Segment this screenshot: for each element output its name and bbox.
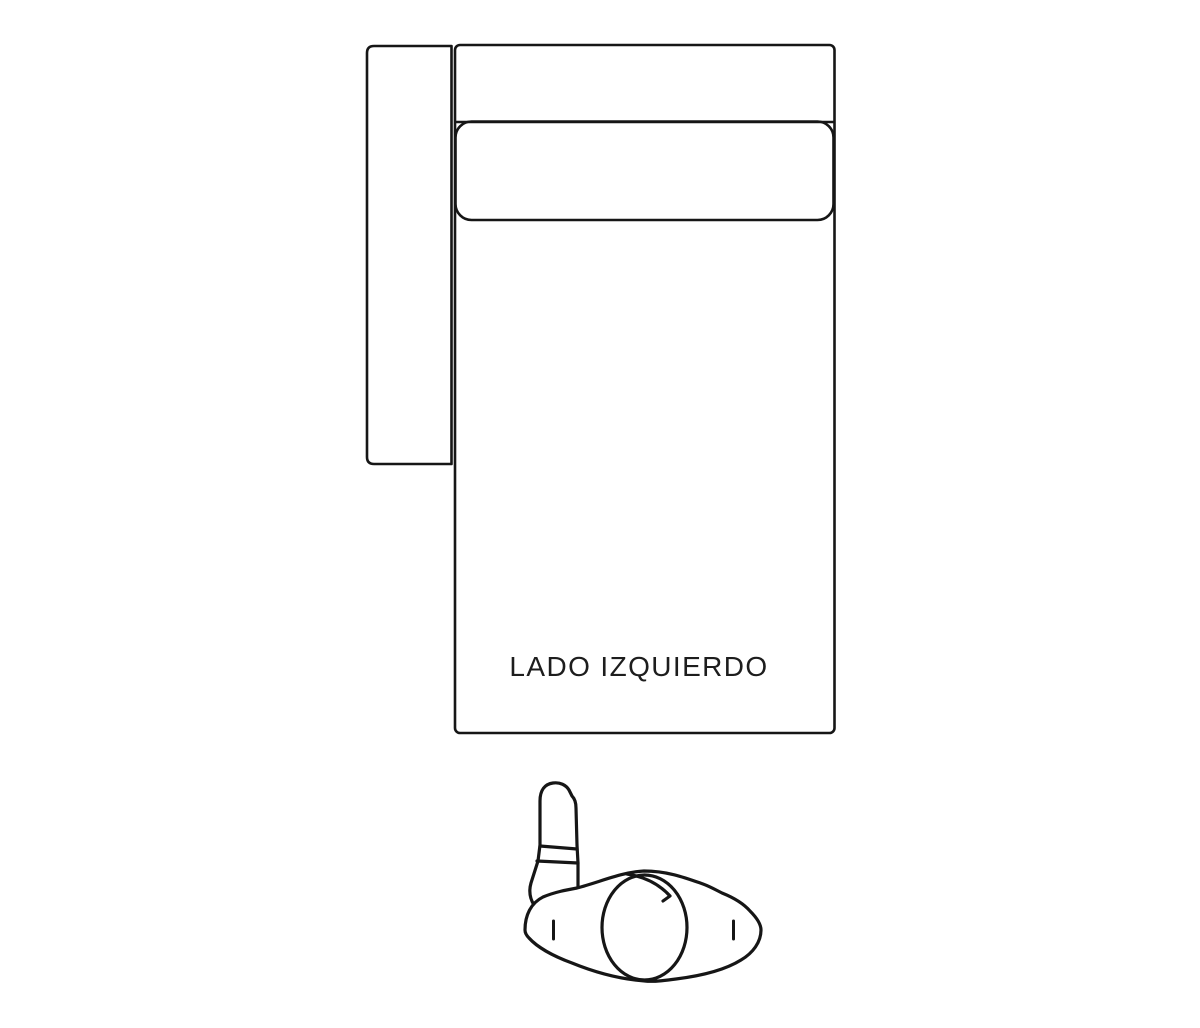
person-arm: [530, 783, 578, 905]
sofa-left-armrest: [367, 46, 452, 464]
person-figure: [525, 783, 761, 982]
sofa-module-group: [367, 45, 835, 733]
sofa-orientation-diagram: LADO IZQUIERDO: [0, 0, 1200, 1028]
side-label-group: LADO IZQUIERDO: [509, 651, 768, 682]
diagram-canvas: LADO IZQUIERDO: [0, 0, 1200, 1028]
person-head: [602, 875, 687, 980]
module-side-label: LADO IZQUIERDO: [509, 651, 768, 682]
sofa-seat-base: [455, 45, 835, 733]
